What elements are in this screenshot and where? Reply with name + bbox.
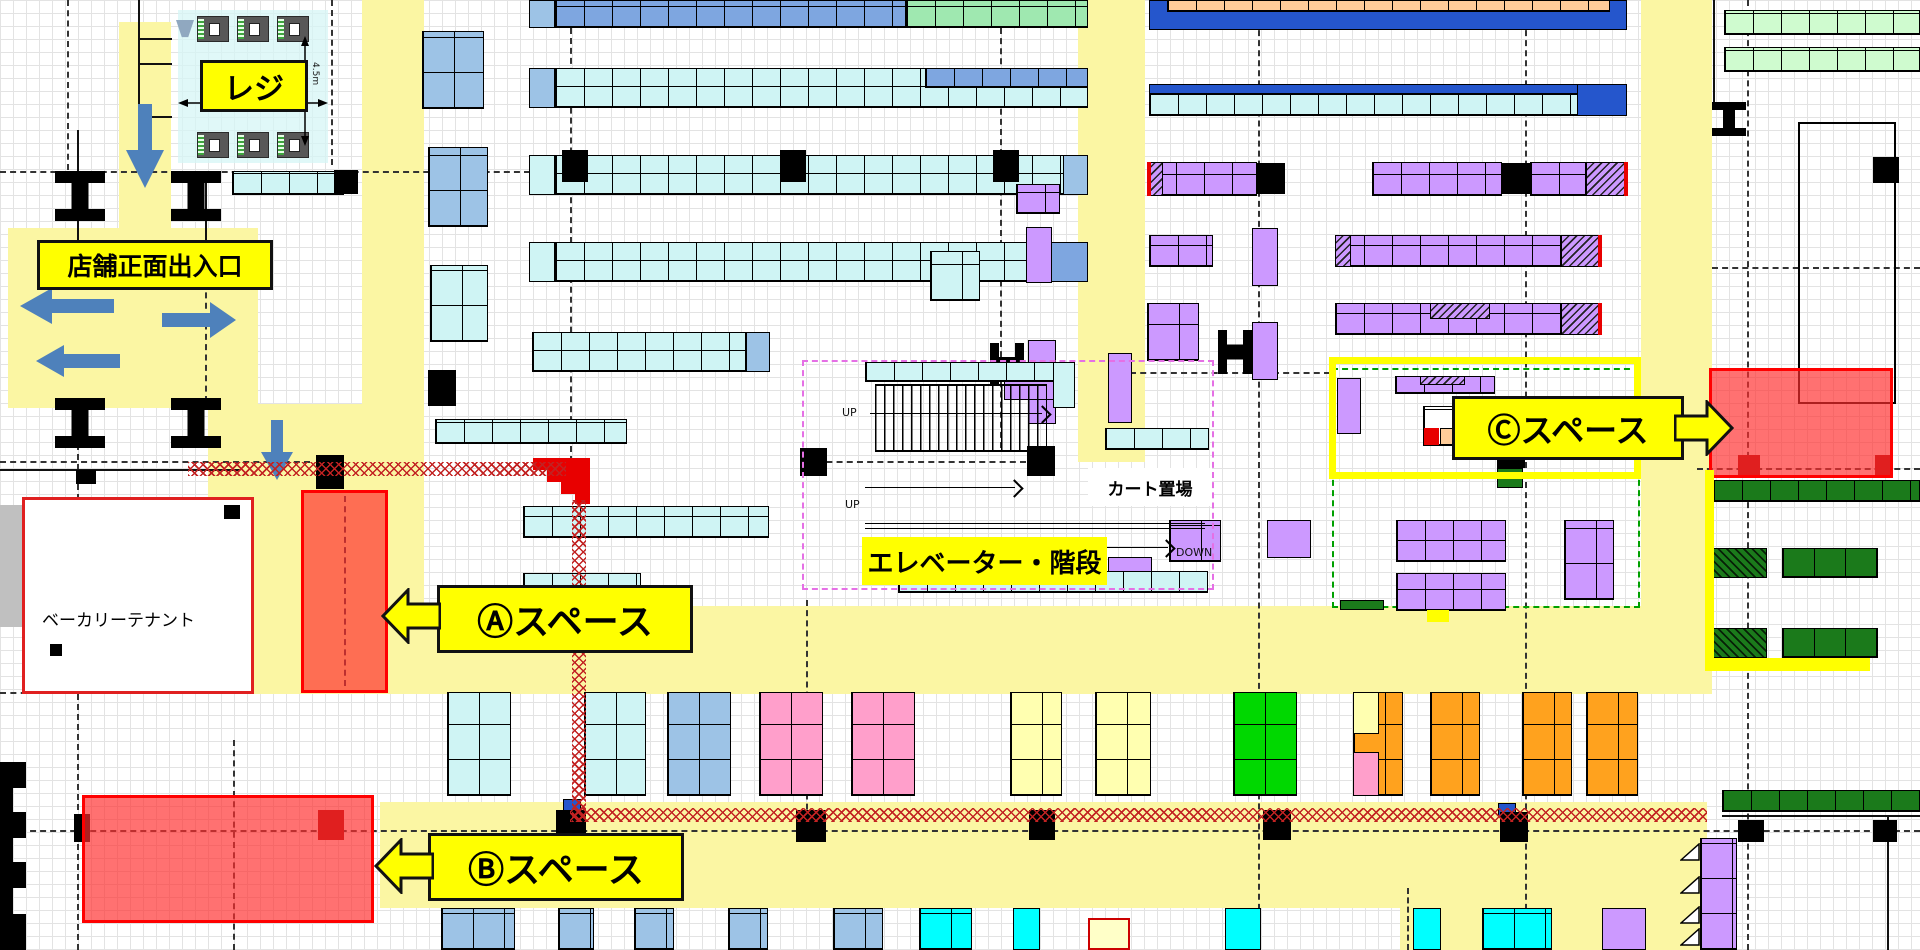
crosshatch-line	[188, 462, 566, 476]
shelf-bright-cyan	[919, 908, 972, 950]
pillar-ibeam	[55, 171, 105, 221]
dashed-line	[331, 0, 333, 165]
floor-aisle	[1400, 840, 1707, 950]
red-zone	[301, 490, 388, 693]
shelf-purple	[1396, 573, 1506, 611]
shelf-cyan	[532, 332, 746, 372]
shelf-blue-light	[746, 332, 770, 372]
cash-register-icon	[237, 16, 269, 42]
red-step-marker	[561, 482, 590, 494]
divider-line-1	[865, 523, 1205, 524]
pillar	[562, 150, 588, 182]
wall-line	[138, 63, 172, 65]
pillar-h	[1218, 330, 1252, 374]
shelf-cyan	[435, 419, 627, 444]
shelf-purple	[1026, 227, 1052, 283]
shelf-purple	[1147, 303, 1199, 361]
pillar	[428, 370, 456, 406]
shelf-purple	[1252, 228, 1278, 286]
red-line	[1147, 162, 1151, 196]
shelf-cyan	[529, 242, 555, 282]
shelf-dark-green-hatched	[1713, 628, 1767, 658]
pillar	[993, 150, 1019, 182]
elevator-stairs-label: エレベーター・階段	[862, 537, 1107, 585]
shelf-purple	[1149, 235, 1213, 267]
shelf-blue-light	[441, 908, 515, 950]
shelf-pale-yellow	[1353, 692, 1379, 734]
bakery-label: ベーカリーテナント	[42, 606, 195, 631]
hatch-triangle-icon	[1680, 876, 1700, 894]
shelf-dark-green	[1713, 480, 1920, 502]
shelf-blue-deep	[1577, 84, 1627, 116]
down-label: DOWN	[1176, 546, 1212, 559]
shelf-pink	[851, 692, 915, 796]
pillar	[780, 150, 806, 182]
shelf-cyan	[523, 506, 769, 538]
pillar	[1873, 820, 1897, 842]
shelf-bright-cyan	[1225, 908, 1261, 950]
shelf-cyan	[447, 692, 511, 796]
shelf-orange	[1522, 692, 1572, 796]
shelf-blue-light	[728, 908, 768, 950]
pillar	[0, 812, 26, 838]
red-line	[1598, 235, 1602, 267]
space-c-label: Ⓒスペース	[1452, 396, 1684, 460]
shelf-purple	[1267, 520, 1311, 558]
shelf-blue-light	[667, 692, 731, 796]
shelf-blue	[925, 68, 1088, 88]
cash-register-icon	[197, 16, 229, 42]
shelf-cyan	[430, 265, 488, 342]
shelf-cyan	[584, 692, 646, 796]
shelf-purple	[1335, 235, 1561, 267]
shelf-blue-light	[428, 147, 488, 227]
shelf-blue-light	[634, 908, 674, 950]
dimension-text: 4.5m	[310, 62, 320, 85]
pillar	[0, 888, 13, 914]
entrance-arrow-right-icon	[160, 300, 238, 340]
shelf-pink	[1353, 752, 1379, 796]
red-zone	[82, 795, 374, 923]
shelf-blue-light	[1063, 155, 1088, 195]
cash-register-icon	[237, 132, 269, 158]
pillar-ibeam	[171, 398, 221, 448]
shelf-purple-hatched	[1335, 235, 1351, 267]
space-b-arrow-icon	[374, 838, 434, 894]
red-zone	[1709, 368, 1893, 478]
store-floor-plan: 4.5m UP UP DOWN レジ 店舗正面出入口 Ⓐスペース Ⓑスペース Ⓒ…	[0, 0, 1920, 950]
pillar	[0, 762, 26, 788]
entrance-arrow-down-icon	[126, 104, 164, 190]
pillar	[0, 914, 26, 950]
shelf-cyan	[555, 242, 1088, 282]
shelf-peach	[1167, 0, 1610, 12]
shelf-purple-hatched	[1430, 303, 1490, 319]
cash-register-icon	[197, 132, 229, 158]
hatch-triangle-icon	[1680, 928, 1700, 946]
shelf-purple	[1016, 184, 1060, 214]
space-a-label: Ⓐスペース	[437, 585, 693, 653]
up-arrow-line-2	[865, 487, 1015, 488]
shelf-dark-green-hatched	[1713, 548, 1767, 578]
up-label-1: UP	[842, 406, 857, 419]
hatch-triangle-icon	[1680, 906, 1700, 924]
pillar	[50, 644, 62, 656]
shelf-blue-deep	[1149, 84, 1627, 94]
red-line	[1598, 303, 1602, 335]
yellow-line	[1427, 610, 1449, 622]
shelf-purple	[1372, 162, 1502, 196]
entrance-arrow-left-icon	[18, 286, 116, 326]
shelf-blue-light	[422, 31, 484, 109]
divider-line-2	[865, 528, 1205, 529]
up-arrow-line	[870, 413, 1042, 414]
shelf-mint	[1724, 10, 1920, 35]
pillar-ibeam	[1712, 102, 1746, 136]
shelf-blue-light	[833, 908, 883, 950]
pillar	[0, 838, 13, 862]
shelf-orange	[1586, 692, 1638, 796]
yellow-line	[1705, 658, 1870, 671]
shelf-bright-cyan	[1413, 908, 1441, 950]
shelf-blue-light	[529, 0, 555, 28]
pillar-ibeam	[171, 171, 221, 221]
pillar	[0, 862, 26, 888]
pillar	[76, 470, 96, 484]
yellow-line	[1705, 470, 1714, 670]
shelf-blue-light	[529, 68, 555, 108]
floor-aisle	[1641, 0, 1712, 694]
shelf-pale-yellow	[1095, 692, 1151, 796]
shelf-purple-hatched	[1561, 303, 1601, 335]
shelf-mint	[1724, 47, 1920, 72]
up-label-2: UP	[845, 498, 860, 511]
wall-line	[1713, 0, 1715, 102]
pillar	[224, 505, 240, 519]
crosshatch-line	[570, 808, 1707, 822]
pillar	[0, 788, 13, 812]
red-line	[1624, 162, 1628, 196]
shelf-dark-green	[1340, 600, 1384, 610]
pillar-ibeam	[55, 398, 105, 448]
space-b-label: Ⓑスペース	[428, 833, 684, 901]
wall-line	[138, 38, 172, 40]
shelf-purple	[1564, 520, 1614, 600]
shelf-purple	[1602, 908, 1646, 950]
shelf-blue	[555, 0, 906, 28]
shelf-bright-cyan	[1482, 908, 1552, 950]
wall-line	[138, 0, 140, 118]
hatch-triangle-icon	[1680, 843, 1700, 861]
space-a-arrow-icon	[381, 588, 441, 644]
shelf-purple	[1396, 520, 1506, 562]
dashed-line	[1407, 888, 1409, 950]
register-label: レジ	[200, 60, 308, 112]
wall-line	[1722, 815, 1920, 817]
space-c-arrow-icon	[1674, 400, 1734, 456]
pillar	[334, 170, 358, 194]
shelf-orange	[1430, 692, 1480, 796]
crosshatch-line	[572, 500, 586, 822]
entrance-label: 店舗正面出入口	[37, 240, 273, 290]
shelf-purple	[1252, 322, 1278, 380]
shelf-pale-yellow	[1010, 692, 1062, 796]
shelf-purple	[1700, 838, 1737, 950]
shelf-bright-cyan	[1013, 908, 1040, 950]
entrance-arrow-left2-icon	[34, 343, 122, 379]
shelf-yellow-red-border	[1088, 918, 1130, 950]
shelf-cyan	[529, 155, 555, 195]
pillar	[1257, 163, 1285, 194]
shelf-green	[906, 0, 1088, 28]
dashed-line	[67, 0, 69, 170]
shelf-dark-green	[1782, 548, 1878, 578]
room-outline	[1798, 122, 1896, 404]
shelf-purple-hatched	[1561, 235, 1601, 267]
cart-area-label: カート置場	[1088, 468, 1212, 506]
shelf-purple	[1147, 162, 1257, 196]
pillar	[1502, 163, 1530, 194]
bakery-room	[22, 497, 254, 694]
pillar	[1738, 820, 1764, 842]
shelf-blue-light	[558, 908, 594, 950]
staircase	[875, 384, 1047, 452]
shelf-cyan	[232, 171, 344, 195]
shelf-dark-green	[1722, 790, 1920, 812]
shelf-cyan	[930, 251, 980, 301]
shelf-purple-hatched	[1586, 162, 1628, 196]
shelf-purple	[1530, 162, 1586, 196]
shelf-bright-green	[1233, 692, 1297, 796]
shelf-pink	[759, 692, 823, 796]
gray-strip	[0, 505, 22, 627]
shelf-dark-green	[1782, 628, 1878, 658]
